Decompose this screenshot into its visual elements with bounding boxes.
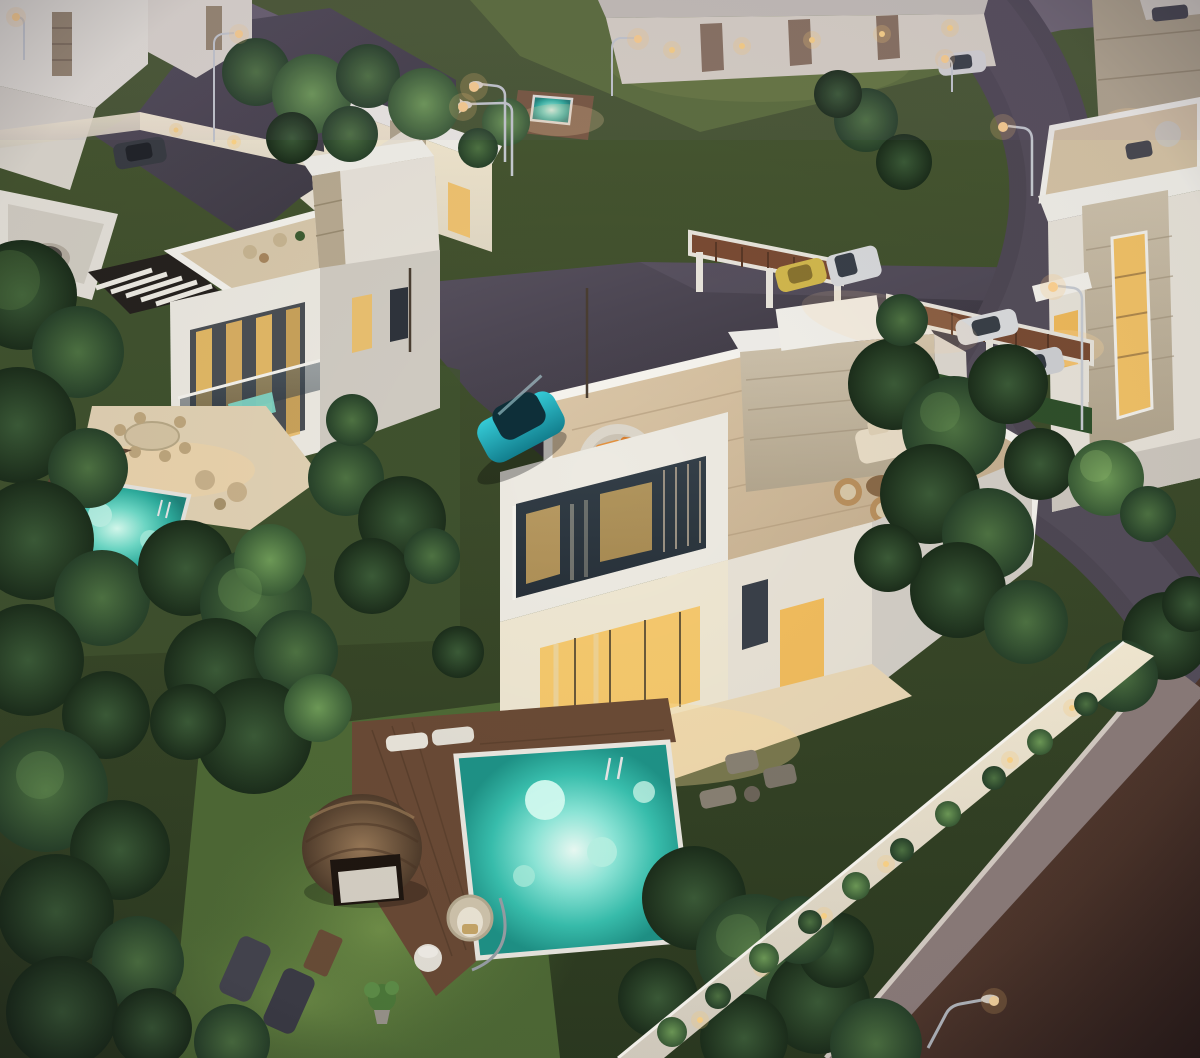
vignette <box>0 0 1200 1058</box>
scene-svg <box>0 0 1200 1058</box>
screenshot-frame <box>0 0 1200 1058</box>
